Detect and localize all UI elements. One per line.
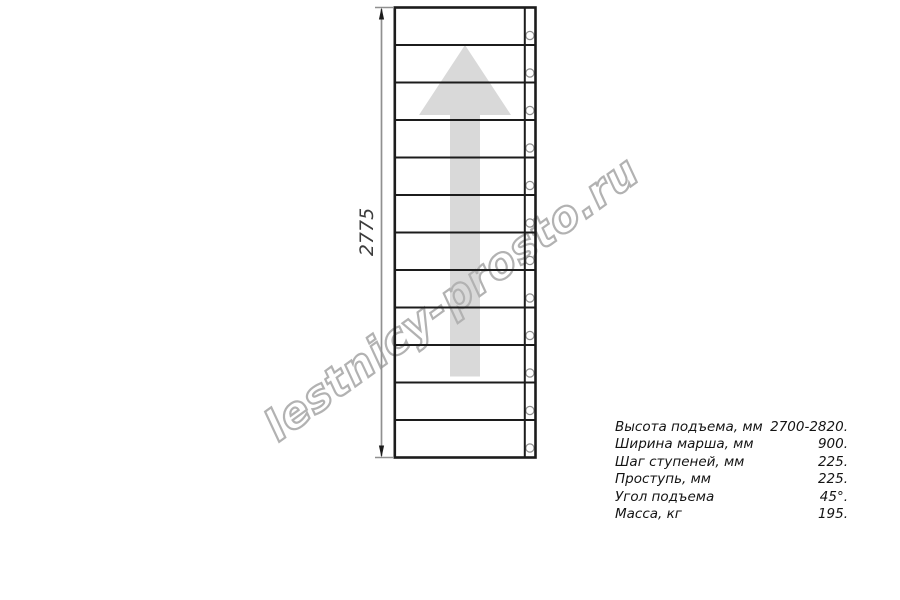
spec-label: Ширина марша, мм (615, 436, 754, 453)
stringer-bolts (526, 31, 534, 452)
spec-value: 195. (818, 506, 848, 523)
bolt-circle (526, 369, 534, 377)
bolt-circle (526, 69, 534, 77)
spec-value: 45°. (820, 489, 848, 506)
spec-value: 900. (818, 436, 848, 453)
bolt-circle (526, 256, 534, 264)
spec-label: Высота подъема, мм (615, 419, 763, 436)
bolt-circle (526, 31, 534, 39)
spec-label: Проступь, мм (615, 471, 711, 488)
bolt-circle (526, 331, 534, 339)
technical-drawing-page: lestnicy-prosto.ru 2775 Высота подъема, … (0, 0, 900, 600)
spec-value: 2700-2820. (770, 419, 848, 436)
dimension-arrow-down (379, 446, 384, 458)
bolt-circle (526, 106, 534, 114)
bolt-circle (526, 144, 534, 152)
spec-label: Угол подъема (615, 489, 714, 506)
spec-row: Масса, кг 195. (615, 506, 848, 523)
spec-label: Масса, кг (615, 506, 682, 523)
bolt-circle (526, 294, 534, 302)
spec-row: Высота подъема, мм 2700-2820. (615, 419, 848, 436)
step-dividers (394, 45, 535, 420)
bolt-circle (526, 181, 534, 189)
spec-row: Угол подъема 45°. (615, 489, 848, 506)
spec-label: Шаг ступеней, мм (615, 454, 744, 471)
spec-row: Проступь, мм 225. (615, 471, 848, 488)
spec-row: Шаг ступеней, мм 225. (615, 454, 848, 471)
bolt-circle (526, 406, 534, 414)
spec-table: Высота подъема, мм 2700-2820. Ширина мар… (615, 419, 848, 524)
dimension-value-2775: 2775 (356, 208, 378, 256)
dimension-arrow-up (379, 8, 384, 20)
spec-row: Ширина марша, мм 900. (615, 436, 848, 453)
spec-value: 225. (818, 454, 848, 471)
bolt-circle (526, 219, 534, 227)
bolt-circle (526, 444, 534, 452)
spec-value: 225. (818, 471, 848, 488)
